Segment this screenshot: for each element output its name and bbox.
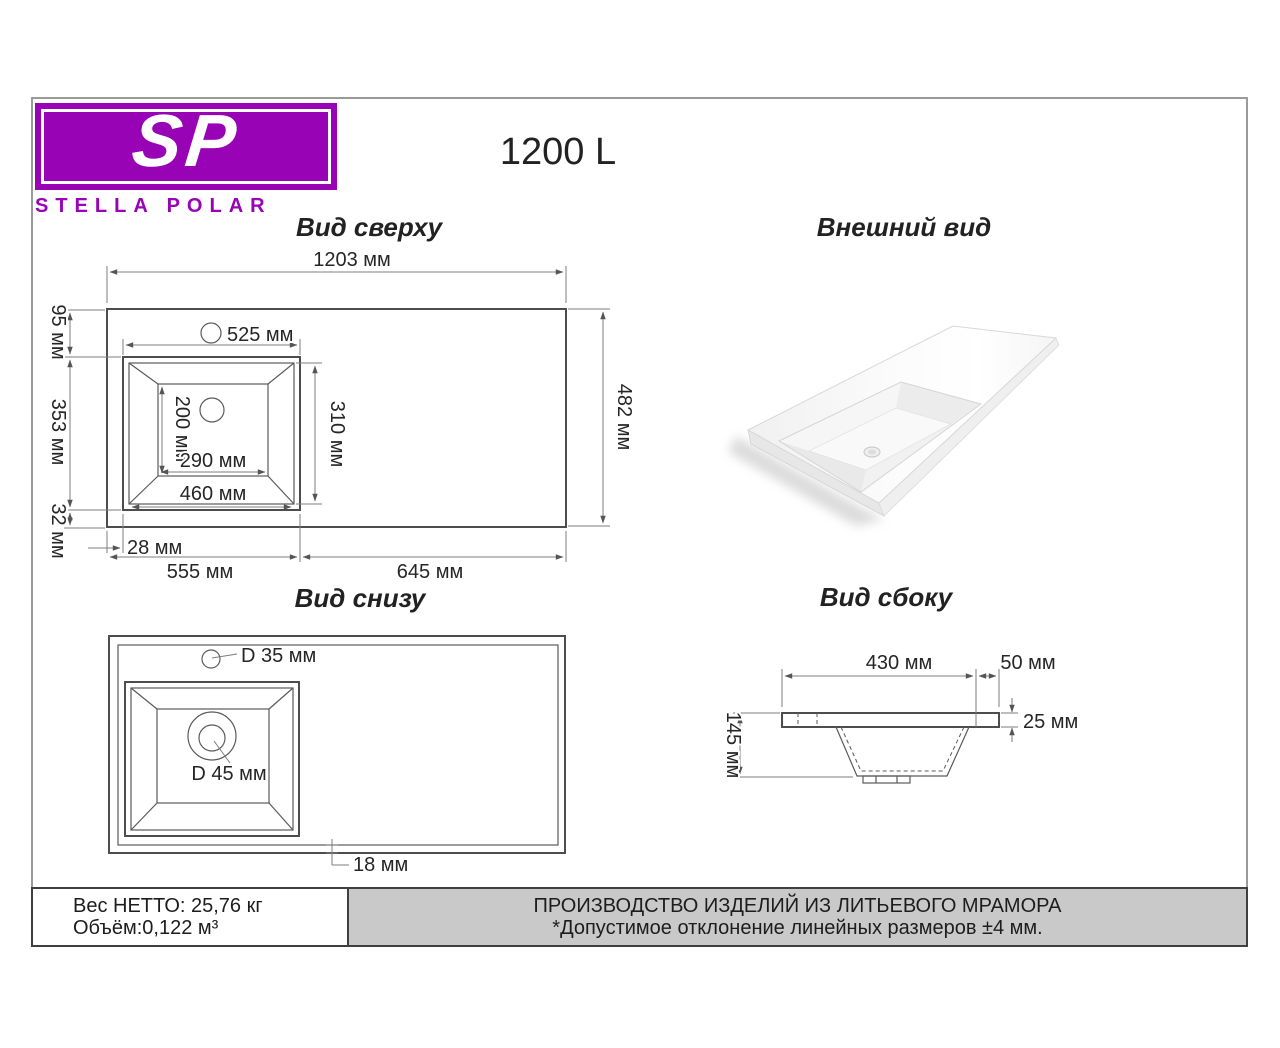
- bottom-view-drawing: D 35 мм D 45 мм 18 мм: [109, 636, 565, 876]
- side-view-drawing: 430 мм 50 мм 25 мм 145 мм: [722, 652, 1078, 783]
- dim-label-edge-top: 95 мм: [47, 304, 69, 359]
- top-view-drawing: 1203 мм 482 мм 95 мм 353 мм 32 мм: [47, 249, 635, 583]
- dim-label-inner-depth: 310 мм: [326, 401, 348, 467]
- dim-label-edge-bottom: 32 мм: [47, 503, 69, 558]
- dim-label-span-left: 555 мм: [167, 561, 233, 583]
- dim-counter-thickness: [1001, 698, 1018, 742]
- footer-weight-volume: Вес НЕТТО: 25,76 кг Объём:0,122 м³: [33, 889, 347, 945]
- dim-label-wall-thickness: 18 мм: [353, 854, 408, 876]
- dim-label-bottom-width: 290 мм: [180, 450, 246, 472]
- counter-section: [782, 713, 999, 727]
- dim-label-basin-depth: 353 мм: [47, 399, 69, 465]
- dim-label-drain-hole: D 45 мм: [191, 763, 266, 785]
- dim-label-basin-width: 525 мм: [227, 324, 293, 346]
- dim-label-total-depth: 482 мм: [613, 384, 635, 450]
- production-text: ПРОИЗВОДСТВО ИЗДЕЛИЙ ИЗ ЛИТЬЕВОГО МРАМОР…: [349, 895, 1246, 917]
- datasheet-page: SP STELLA POLAR 1200 L Вид сверху Внешни…: [0, 0, 1280, 1048]
- dim-label-span-right: 645 мм: [397, 561, 463, 583]
- dim-label-offset-left: 28 мм: [127, 537, 182, 559]
- dim-label-faucet-hole: D 35 мм: [241, 645, 316, 667]
- dim-label-basin-bottom-width: 460 мм: [180, 483, 246, 505]
- basin-section-inner: [841, 727, 964, 771]
- tolerance-text: *Допустимое отклонение линейных размеров…: [349, 917, 1246, 939]
- drain-stub: [863, 776, 910, 783]
- dim-label-counter-thickness: 25 мм: [1023, 711, 1078, 733]
- dim-total-width: [107, 266, 566, 303]
- basin-section-outline: [836, 727, 969, 776]
- drain-3d-hole: [868, 450, 876, 455]
- volume-text: Объём:0,122 м³: [73, 917, 347, 939]
- footer-production-note: ПРОИЗВОДСТВО ИЗДЕЛИЙ ИЗ ЛИТЬЕВОГО МРАМОР…: [347, 889, 1246, 945]
- dim-label-ledge-width: 50 мм: [1000, 652, 1055, 674]
- dim-total-depth: [568, 309, 610, 526]
- dim-label-basin-width-side: 430 мм: [866, 652, 932, 674]
- dim-label-total-width: 1203 мм: [313, 249, 391, 271]
- net-weight-text: Вес НЕТТО: 25,76 кг: [73, 895, 347, 917]
- dim-label-total-height: 145 мм: [722, 712, 744, 778]
- footer-info-bar: Вес НЕТТО: 25,76 кг Объём:0,122 м³ ПРОИЗ…: [31, 887, 1248, 947]
- external-view-render: [728, 326, 1059, 526]
